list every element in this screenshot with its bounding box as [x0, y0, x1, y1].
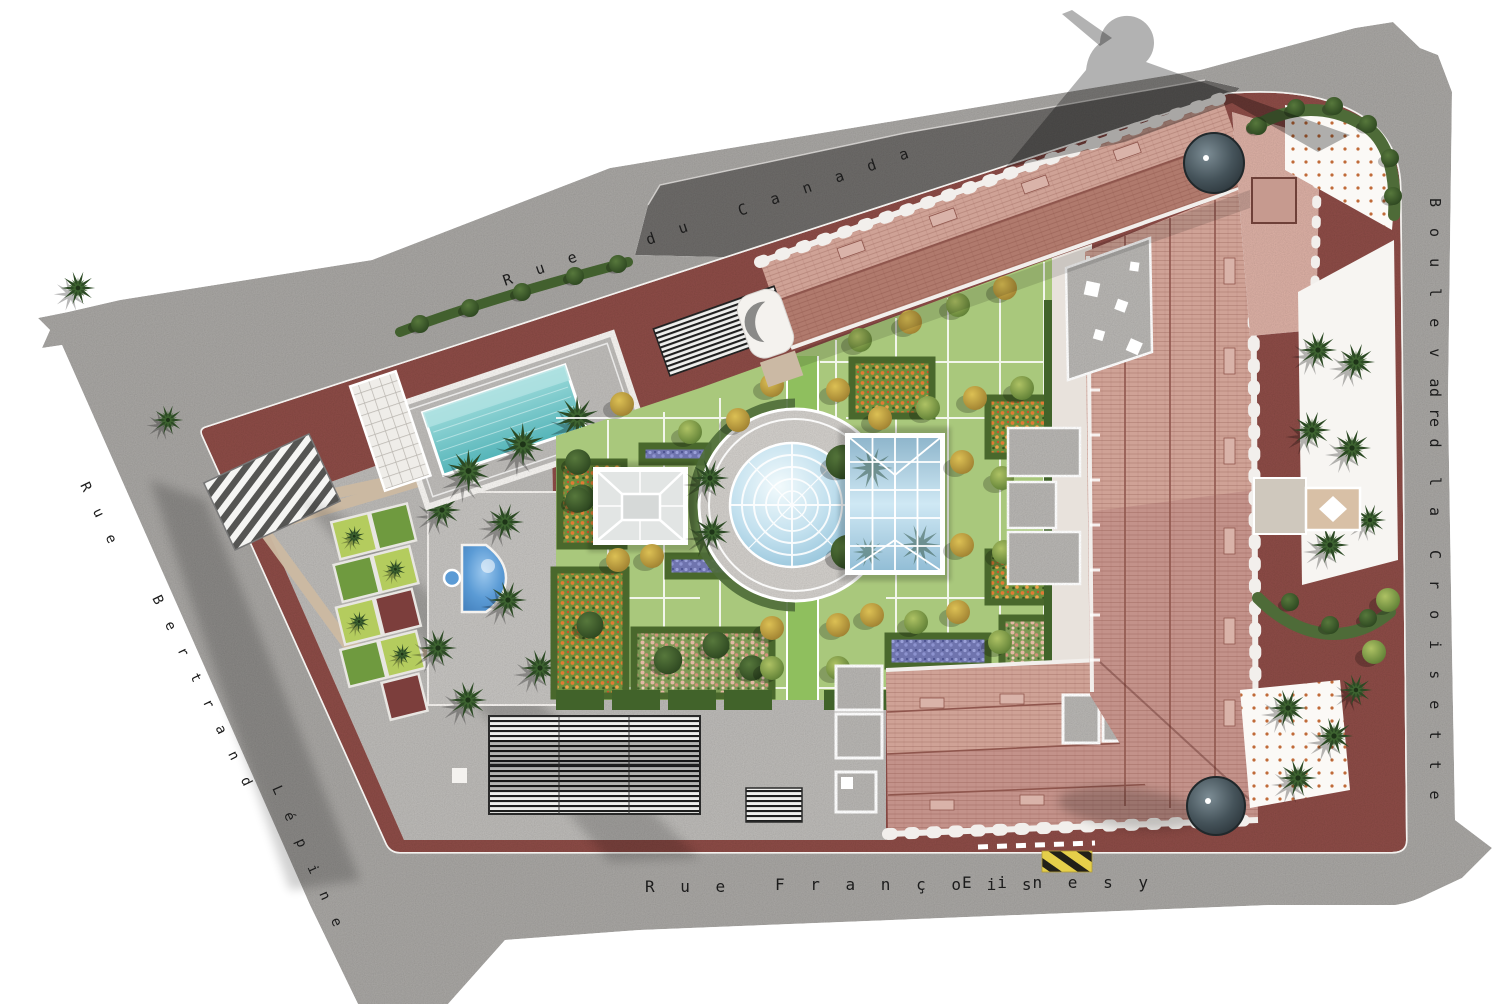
rooftop-feature — [1252, 178, 1296, 223]
roof-skylight — [1063, 695, 1099, 743]
plaza-utility-box — [452, 768, 467, 783]
decorative-paved-square — [1306, 488, 1360, 530]
street-label-croisette-word-3: C r o i s e t t e — [1426, 550, 1444, 806]
street-palm — [54, 272, 95, 311]
street-label-lepine-word-0: R u e — [76, 480, 122, 552]
louver-skylight-large — [489, 716, 700, 814]
flower-bed-purple — [642, 446, 708, 462]
street-label-einesy-word-0: R u e — [645, 877, 733, 896]
curved-pool-terrace — [411, 492, 560, 725]
corner-turret-north — [1184, 133, 1244, 193]
spa-circle — [444, 570, 460, 586]
site-plan-canvas: R u e d u C a n a d a B o u l e v a r d … — [0, 0, 1496, 1004]
street-label-croisette-word-2: l a — [1426, 477, 1444, 522]
pool-sparkle — [481, 559, 495, 573]
corner-turret-south — [1187, 777, 1245, 835]
hazard-marking — [1042, 851, 1092, 872]
louver-skylight-small — [746, 788, 802, 822]
paved-landing — [1254, 478, 1306, 534]
street-label-croisette-word-1: d e — [1426, 388, 1444, 433]
flower-bed-lavender — [888, 636, 988, 666]
forecourt-terraces — [836, 666, 882, 812]
street-label-einesy-word-2: E i n e s y — [962, 873, 1156, 892]
forecourt-skylight — [841, 777, 853, 789]
palm-walk — [1298, 240, 1398, 585]
glass-atrium — [839, 427, 951, 581]
